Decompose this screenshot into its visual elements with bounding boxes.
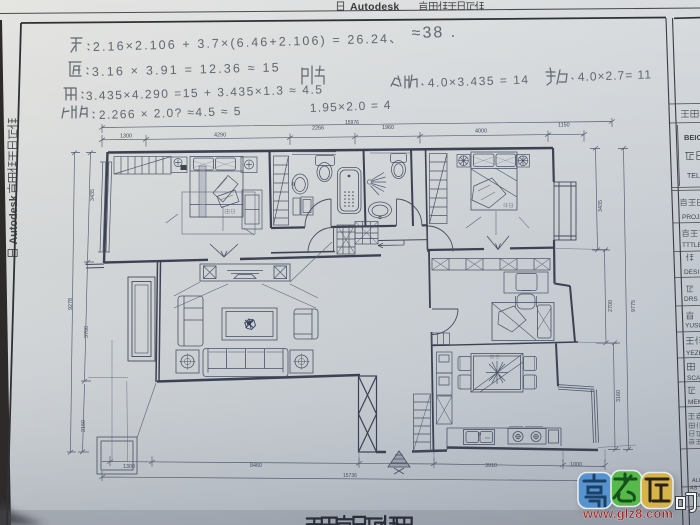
svg-text:3910: 3910 <box>485 463 497 469</box>
svg-text:www.glz8.com: www.glz8.com <box>582 506 673 521</box>
svg-text:2700: 2700 <box>608 300 614 312</box>
svg-text:3435: 3435 <box>598 200 604 212</box>
svg-text:8460: 8460 <box>250 463 262 469</box>
svg-text:SCAL: SCAL <box>687 375 700 382</box>
svg-text:Autodesk: Autodesk <box>350 1 399 13</box>
svg-text:TEL: TEL <box>687 173 700 180</box>
svg-text:≈38 .: ≈38 . <box>411 24 457 42</box>
svg-text:9278: 9278 <box>68 298 74 310</box>
svg-text:AS T: AS T <box>690 486 700 492</box>
svg-text:3700: 3700 <box>84 326 90 338</box>
svg-text:2160: 2160 <box>81 420 87 432</box>
svg-text:15736: 15736 <box>343 473 357 479</box>
svg-text:1000: 1000 <box>570 462 582 468</box>
svg-text:DRS I: DRS I <box>684 296 700 303</box>
svg-text:YEZH: YEZH <box>686 350 700 357</box>
svg-text:2266: 2266 <box>312 126 324 132</box>
svg-text:BEIC: BEIC <box>684 133 700 142</box>
svg-text:4.0×2.7= 11: 4.0×2.7= 11 <box>578 67 653 84</box>
svg-text:4290: 4290 <box>214 133 226 139</box>
svg-text:3160: 3160 <box>616 390 622 402</box>
svg-text:4000: 4000 <box>475 129 487 135</box>
svg-text:3435: 3435 <box>90 189 96 201</box>
svg-text:1300: 1300 <box>123 464 135 470</box>
svg-text:PROJE: PROJE <box>682 214 700 221</box>
svg-text:15976: 15976 <box>345 120 359 126</box>
svg-text:9775: 9775 <box>631 300 637 312</box>
svg-text:1150: 1150 <box>558 123 570 129</box>
svg-text:TTTLE: TTTLE <box>682 242 700 249</box>
svg-text:DESI: DESI <box>684 269 699 276</box>
svg-text:Autodesk: Autodesk <box>8 194 20 244</box>
svg-text:YUSU: YUSU <box>685 323 700 330</box>
svg-text:ALL: ALL <box>692 478 700 484</box>
svg-text:1960: 1960 <box>382 125 394 131</box>
svg-text:MEM: MEM <box>688 399 700 406</box>
svg-text:1300: 1300 <box>120 134 132 140</box>
